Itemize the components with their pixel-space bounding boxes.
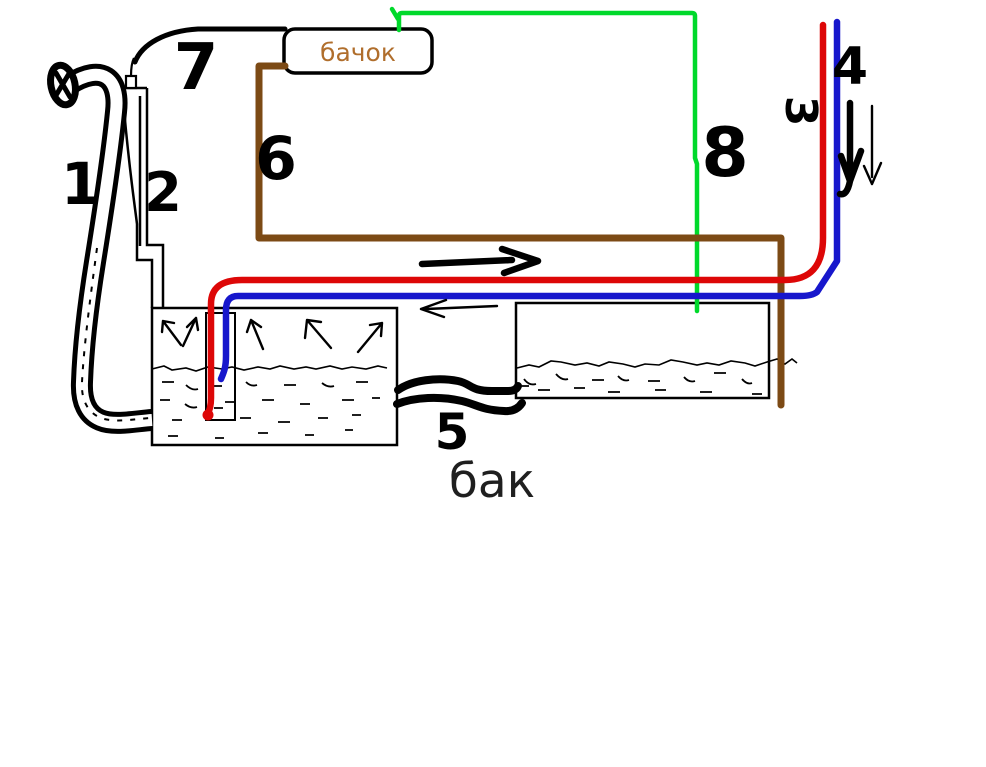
left-tank-waterline [152, 366, 387, 371]
down-arrow-thick [840, 103, 861, 194]
evaporation-arrow [305, 320, 331, 348]
label-4: 4 [832, 37, 868, 97]
red-line-end-blob [203, 410, 214, 421]
label-8: 8 [701, 114, 748, 193]
flow-arrow-left [421, 300, 497, 317]
label-5: 5 [435, 403, 470, 461]
right-tank-outline [516, 303, 769, 398]
left-tank-outline [152, 308, 397, 445]
blue-line [221, 22, 837, 379]
green-line-path [399, 13, 697, 311]
right-tank-water-dashes [522, 373, 762, 394]
transfer-hose-top-line [398, 379, 518, 391]
label-6: 6 [255, 124, 297, 194]
left-tank [152, 308, 397, 445]
right-tank-waterline [517, 359, 797, 368]
reservoir-box: бачок [284, 29, 432, 73]
paint-canvas: бачок 1 2 3 4 5 6 7 8 бак [0, 0, 986, 767]
label-3: 3 [775, 96, 826, 127]
green-arrow-barb [392, 9, 398, 19]
evaporation-arrow [162, 321, 181, 345]
label-2: 2 [144, 161, 182, 224]
evaporation-arrows [162, 318, 382, 352]
right-tank [516, 303, 797, 398]
flow-arrow-right [422, 249, 538, 273]
evaporation-arrow [358, 323, 382, 352]
label-1: 1 [61, 150, 101, 218]
left-tank-water-dashes [160, 382, 380, 438]
evaporation-arrow [183, 318, 198, 346]
reservoir-label: бачок [320, 38, 396, 67]
stand-pipe-fitting [126, 76, 136, 88]
evaporation-arrow [247, 320, 263, 349]
tank-label: бак [449, 454, 535, 509]
down-arrow-thin [864, 106, 881, 184]
label-7: 7 [174, 31, 219, 105]
